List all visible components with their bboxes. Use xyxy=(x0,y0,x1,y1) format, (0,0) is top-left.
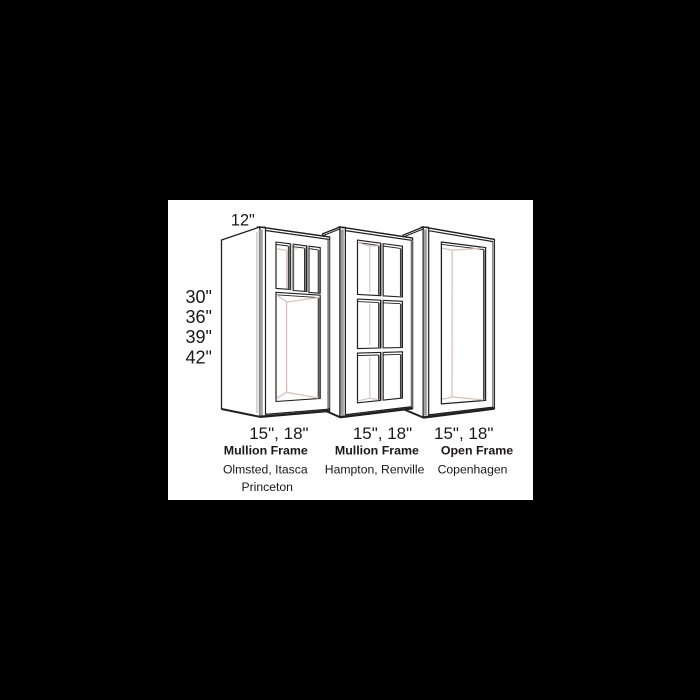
svg-text:Princeton: Princeton xyxy=(241,480,293,494)
svg-text:15", 18": 15", 18" xyxy=(353,424,412,443)
svg-text:12": 12" xyxy=(231,211,255,229)
svg-text:Open Frame: Open Frame xyxy=(441,444,513,458)
svg-text:39": 39" xyxy=(185,327,211,347)
svg-text:Copenhagen: Copenhagen xyxy=(438,462,508,476)
svg-text:Hampton, Renville: Hampton, Renville xyxy=(325,462,425,476)
svg-text:Mullion Frame: Mullion Frame xyxy=(335,444,419,458)
svg-text:15", 18": 15", 18" xyxy=(434,424,493,443)
svg-text:Olmsted, Itasca: Olmsted, Itasca xyxy=(223,462,308,476)
svg-text:15", 18": 15", 18" xyxy=(249,424,308,443)
svg-text:Mullion Frame: Mullion Frame xyxy=(224,444,308,458)
svg-text:30": 30" xyxy=(185,287,211,307)
svg-text:36": 36" xyxy=(185,307,211,327)
svg-text:42": 42" xyxy=(185,347,211,367)
